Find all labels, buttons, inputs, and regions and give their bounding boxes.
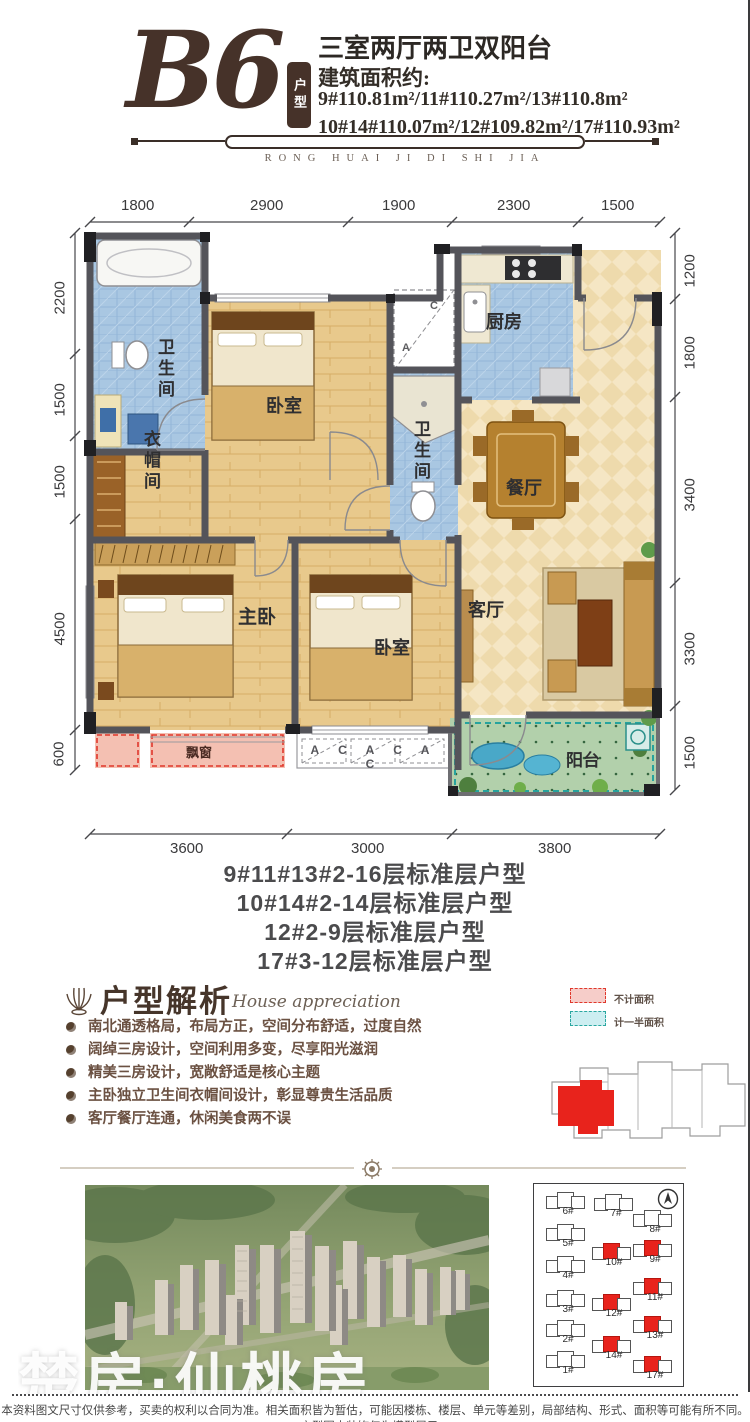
floor-plan: 1800 2900 1900 2300 1500 3600 3000 3800 … xyxy=(0,190,750,860)
divider-end-square xyxy=(131,138,138,145)
building-8: 8# xyxy=(633,1210,677,1238)
dim-right-4: 3300 xyxy=(682,626,699,666)
analysis-title: 户型解析 xyxy=(100,976,232,1021)
analysis-subtitle: House appreciation xyxy=(232,992,401,1012)
analysis-bullet: 阔绰三房设计，空间利用多变，尽享阳光滋润 xyxy=(64,1043,534,1058)
dim-top-3: 1900 xyxy=(382,197,415,214)
dim-bottom-2: 3000 xyxy=(351,840,384,857)
brochure-page: B6 户型 三室两厅两卫双阳台 建筑面积约: 9#110.81m²/11#110… xyxy=(0,0,750,1422)
footer-disclaimer: 本资料图文尺寸仅供参考，买卖的权利以合同为准。相关面积皆为暂估，可能因楼栋、楼层… xyxy=(0,1402,750,1422)
room-label-closet: 衣帽间 xyxy=(138,430,162,493)
building-11: 11# xyxy=(633,1278,677,1306)
dim-left-2: 1500 xyxy=(52,377,69,417)
divider-capsule xyxy=(225,135,585,149)
ornament-rosette-icon xyxy=(358,1157,386,1181)
watermark: 楚房·仙桃房 xyxy=(18,1332,498,1394)
room-label-balcony: 阳台 xyxy=(566,746,600,771)
highlighted-unit xyxy=(558,1080,614,1134)
dim-right-3: 3400 xyxy=(682,472,699,512)
dim-left-1: 2200 xyxy=(52,275,69,315)
analysis-bullet: 客厅餐厅连通，休闲美食两不误 xyxy=(64,1112,534,1127)
divider-end-square xyxy=(652,138,659,145)
room-label-kitchen: 厨房 xyxy=(486,308,522,334)
room-label-bedroom2: 卧室 xyxy=(374,634,410,660)
analysis-bullet: 主卧独立卫生间衣帽间设计，彰显尊贵生活品质 xyxy=(64,1089,534,1104)
room-label-master: 主卧 xyxy=(238,602,276,629)
dim-top-1: 1800 xyxy=(121,197,154,214)
building-14: 14# xyxy=(592,1336,636,1364)
ac-row-letters: A C A C A C xyxy=(300,743,448,771)
building-2: 2# xyxy=(546,1320,590,1348)
dim-bottom-1: 3600 xyxy=(170,840,203,857)
standard-floor-line: 10#14#2-14层标准层户型 xyxy=(0,889,750,918)
standard-floors: 9#11#13#2-16层标准层户型 10#14#2-14层标准层户型 12#2… xyxy=(0,860,750,976)
building-6: 6# xyxy=(546,1192,590,1220)
dim-left-3: 1500 xyxy=(52,459,69,499)
ornament-line-left xyxy=(60,1167,354,1169)
standard-floor-line: 9#11#13#2-16层标准层户型 xyxy=(0,860,750,889)
site-plan-panel: 6# 7# 8# 5# 9# 10# 4# 11# 3# 12# 13# 2# … xyxy=(533,1183,684,1387)
dim-top-5: 1500 xyxy=(601,197,634,214)
building-9: 9# xyxy=(633,1240,677,1268)
analysis-bullet: 南北通透格局，布局方正，空间分布舒适，过度自然 xyxy=(64,1020,534,1035)
unit-position-diagram xyxy=(550,1050,748,1164)
building-4: 4# xyxy=(546,1256,590,1284)
footer-dotted-line xyxy=(12,1394,738,1396)
room-label-bath2: 卫生间 xyxy=(408,420,432,483)
building-12: 12# xyxy=(592,1294,636,1322)
dim-left-4: 4500 xyxy=(52,606,69,646)
building-5: 5# xyxy=(546,1224,590,1252)
plan-title: 三室两厅两卫双阳台 xyxy=(318,28,552,65)
brand-letters: RONG HUAI JI DI SHI JIA xyxy=(205,153,605,164)
dim-bottom-3: 3800 xyxy=(538,840,571,857)
building-3: 3# xyxy=(546,1290,590,1318)
room-label-bath1: 卫生间 xyxy=(152,338,176,401)
building-17: 17# xyxy=(633,1356,677,1384)
legend-label-no-area: 不计面积 xyxy=(614,991,654,1006)
dim-right-1: 1200 xyxy=(682,248,699,288)
ornament-line-right xyxy=(392,1167,686,1169)
north-compass-icon xyxy=(657,1188,679,1210)
dim-right-5: 1500 xyxy=(682,730,699,770)
room-label-bay-window: 飘窗 xyxy=(186,742,212,761)
dim-top-4: 2300 xyxy=(497,197,530,214)
analysis-bullets: 南北通透格局，布局方正，空间分布舒适，过度自然 阔绰三房设计，空间利用多变，尽享… xyxy=(64,1020,534,1135)
ac-top-letter-c: C xyxy=(430,300,438,312)
legend-swatch-half-area xyxy=(570,1011,606,1026)
area-line-1: 9#110.81m²/11#110.27m²/13#110.8m² xyxy=(318,88,628,111)
legend-swatch-no-area xyxy=(570,988,606,1003)
building-10: 10# xyxy=(592,1243,636,1271)
dim-left-5: 600 xyxy=(51,737,68,767)
standard-floor-line: 17#3-12层标准层户型 xyxy=(0,947,750,976)
dim-right-2: 1800 xyxy=(682,330,699,370)
room-label-dining: 餐厅 xyxy=(506,474,542,500)
building-7: 7# xyxy=(594,1194,638,1222)
dim-top-2: 2900 xyxy=(250,197,283,214)
room-label-bedroom1: 卧室 xyxy=(266,392,302,418)
legend-label-half-area: 计一半面积 xyxy=(614,1014,664,1029)
building-1: 1# xyxy=(546,1351,590,1379)
analysis-bullet: 精美三房设计，宽敞舒适是核心主题 xyxy=(64,1066,534,1081)
plan-type-badge: 户型 xyxy=(287,62,311,128)
divider-line xyxy=(585,140,652,142)
emblem-icon xyxy=(64,980,94,1016)
plan-code: B6 xyxy=(126,14,281,125)
ac-top-letter-a: A xyxy=(402,342,410,354)
standard-floor-line: 12#2-9层标准层户型 xyxy=(0,918,750,947)
room-label-living: 客厅 xyxy=(468,596,504,622)
building-13: 13# xyxy=(633,1316,677,1344)
divider-line xyxy=(138,140,225,142)
